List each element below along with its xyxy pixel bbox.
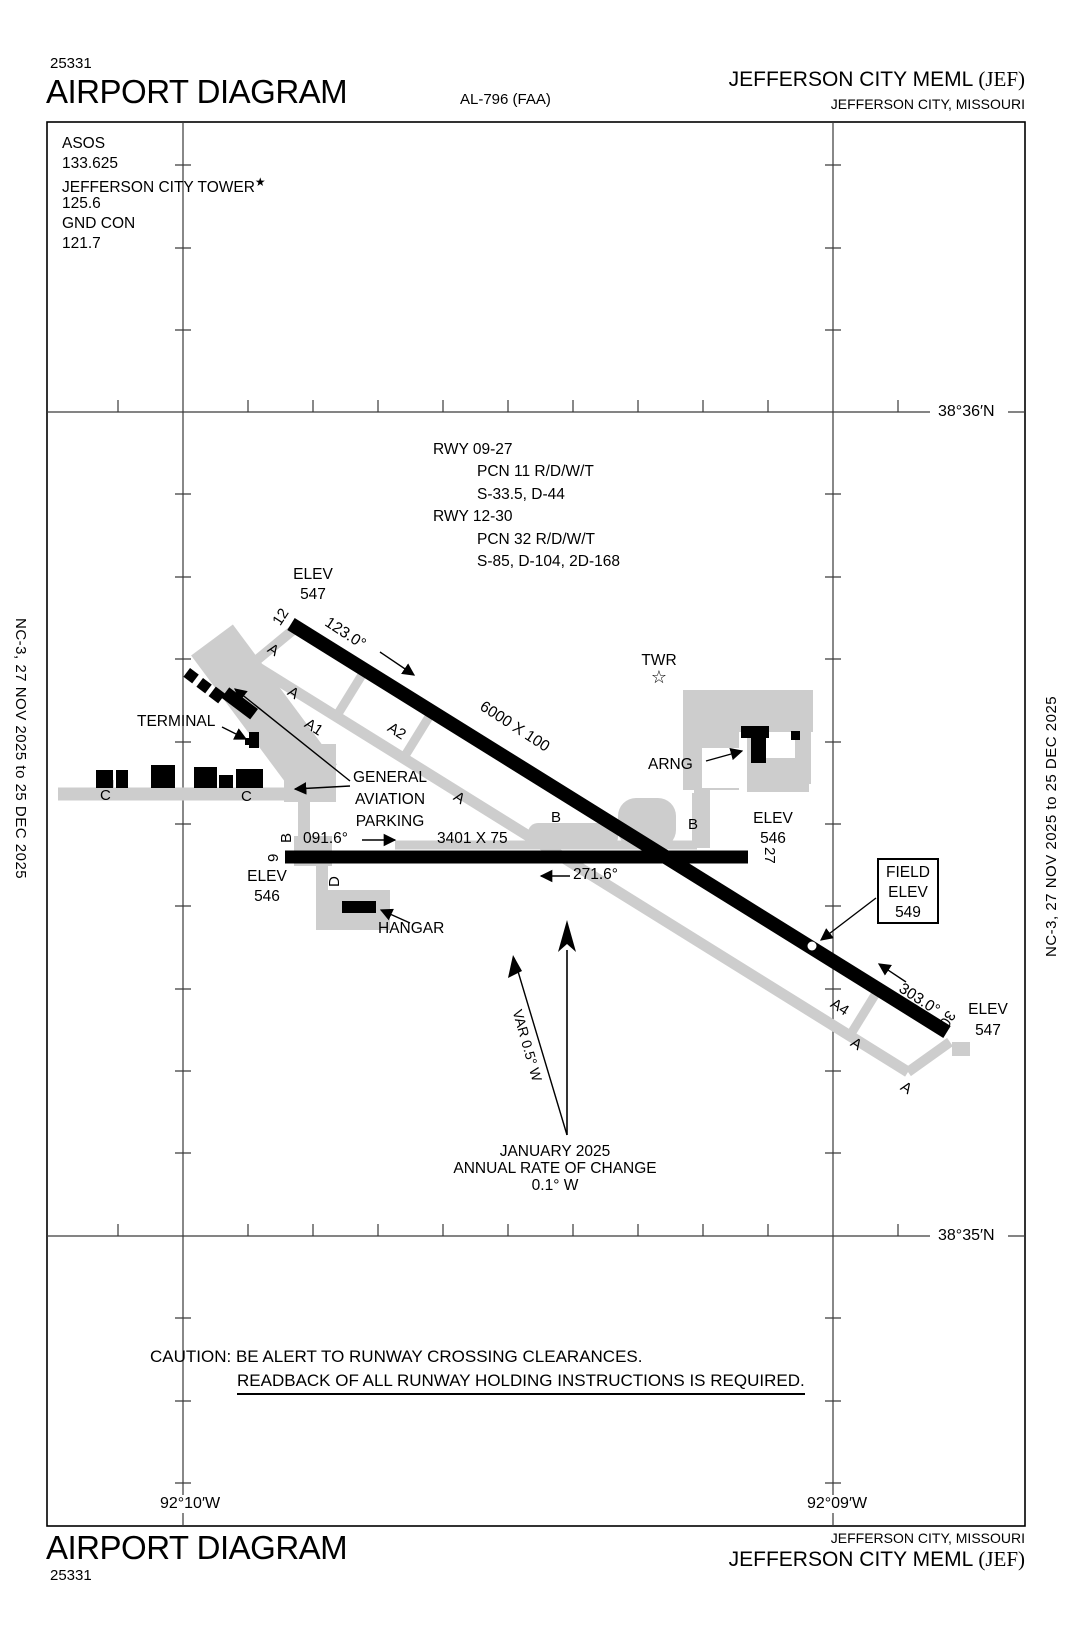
rwy30-end-stub <box>952 1042 970 1056</box>
rwy12-elev-label: ELEV <box>288 566 338 583</box>
latitude-label-bottom: 38°35′N <box>934 1227 999 1245</box>
caution-line2: READBACK OF ALL RUNWAY HOLDING INSTRUCTI… <box>237 1372 805 1395</box>
rwy12-elev-value: 547 <box>288 586 338 603</box>
footer-title: AIRPORT DIAGRAM <box>46 1530 347 1566</box>
east-small-building <box>791 731 800 740</box>
edition-date-left: NC-3, 27 NOV 2025 to 25 DEC 2025 <box>12 618 29 879</box>
east-apron-courtyard <box>702 748 745 788</box>
taxiway-c-label-1: C <box>100 788 111 805</box>
rwy-data-line6: S-85, D-104, 2D-168 <box>477 553 620 570</box>
hangar-label: HANGAR <box>378 920 444 937</box>
page-title: AIRPORT DIAGRAM <box>46 74 347 110</box>
field-elevation-box: FIELD ELEV 549 <box>877 858 939 924</box>
footer-chart-number: 25331 <box>50 1568 92 1585</box>
terminal-complex-seg2 <box>196 678 211 693</box>
tower-star-symbol: ☆ <box>637 668 681 688</box>
rwy9-elev-label: ELEV <box>244 868 290 885</box>
terminal-building <box>249 732 259 748</box>
field-elev-leader-arrow <box>821 898 876 940</box>
taxiway-b-label-mid1: B <box>551 810 561 827</box>
ga-parking-label-1: GENERAL <box>345 769 435 786</box>
asos-frequency: 133.625 <box>62 155 118 173</box>
tower-label: JEFFERSON CITY TOWER★ <box>62 175 266 197</box>
ga-parking-label-3: PARKING <box>345 813 435 830</box>
tower-star-icon: ★ <box>255 175 266 189</box>
airport-city-header: JEFFERSON CITY, MISSOURI <box>831 97 1025 112</box>
airport-code-text: (JEF) <box>978 67 1025 91</box>
taxiway-d-label: D <box>327 876 344 887</box>
field-elev-line2: ELEV <box>879 883 937 903</box>
hangar-building <box>342 901 376 913</box>
taxiway-c-label-2: C <box>241 789 252 806</box>
variation-rate-value: 0.1° W <box>430 1177 680 1194</box>
field-elev-line3: 549 <box>879 903 937 923</box>
ga-building-5 <box>219 775 233 788</box>
arng-building-stem <box>751 737 766 763</box>
apron-center <box>284 744 336 802</box>
magnetic-north-arrow-head <box>508 955 522 978</box>
latitude-label-top: 38°36′N <box>934 403 999 421</box>
footer-city: JEFFERSON CITY, MISSOURI <box>831 1531 1025 1546</box>
longitude-label-left: 92°10′W <box>151 1495 229 1513</box>
taxiway-a-rwy30-connector <box>908 1042 950 1072</box>
rwy-data-line2: PCN 11 R/D/W/T <box>477 463 594 480</box>
rwy-data-line3: S-33.5, D-44 <box>477 486 565 503</box>
variation-date: JANUARY 2025 <box>430 1143 680 1160</box>
edition-date-right: NC-3, 27 NOV 2025 to 25 DEC 2025 <box>1044 696 1061 957</box>
ga-building-6 <box>236 769 263 788</box>
heading-123-arrow <box>380 652 414 675</box>
caution-line1: CAUTION: BE ALERT TO RUNWAY CROSSING CLE… <box>150 1348 643 1367</box>
graticule-ticks-top <box>118 400 898 412</box>
rwy9-elev-value: 546 <box>244 888 290 905</box>
taxiway-b-label-mid2: B <box>688 817 698 834</box>
footer-airport-name-text: JEFFERSON CITY MEML <box>729 1548 973 1571</box>
rwy0927-dimensions: 3401 X 75 <box>437 830 508 847</box>
true-north-arrow-head <box>558 920 576 952</box>
airport-name-text: JEFFERSON CITY MEML <box>729 68 973 91</box>
rwy0927-heading1: 091.6° <box>303 830 348 847</box>
taxiway-a2 <box>403 712 432 759</box>
rwy-data-line4: RWY 12-30 <box>433 508 513 525</box>
terminal-leader-arrow <box>222 727 246 739</box>
tower-label-text: JEFFERSON CITY TOWER <box>62 179 255 196</box>
gnd-con-label: GND CON <box>62 215 135 233</box>
field-elev-reference-dot <box>808 942 817 951</box>
airport-name-header: JEFFERSON CITY MEML (JEF) <box>729 68 1025 91</box>
field-elev-line1: FIELD <box>879 863 937 883</box>
chart-number-top: 25331 <box>50 56 92 73</box>
heading-303-arrow <box>879 964 906 982</box>
rwy27-elev-value: 546 <box>750 830 796 847</box>
graticule-ticks-bottom <box>118 1224 898 1236</box>
arng-building-top <box>741 726 769 738</box>
rwy9-number: 9 <box>266 854 283 862</box>
rwy30-elev-value: 547 <box>964 1022 1012 1039</box>
footer-airport-code-text: (JEF) <box>978 1547 1025 1571</box>
tower-frequency: 125.6 <box>62 195 101 213</box>
taxiway-a1 <box>336 670 365 717</box>
footer-airport-name: JEFFERSON CITY MEML (JEF) <box>729 1548 1025 1571</box>
asos-label: ASOS <box>62 135 105 153</box>
ga-parking-label-2: AVIATION <box>345 791 435 808</box>
rwy0927-heading2: 271.6° <box>573 866 618 883</box>
taxiway-b-label-west: B <box>279 833 296 843</box>
ga-building-4 <box>194 767 217 788</box>
terminal-complex-seg1 <box>183 668 198 683</box>
airport-map-canvas <box>0 0 1076 1650</box>
al-reference: AL-796 (FAA) <box>460 92 551 109</box>
rwy27-number: 27 <box>761 847 778 864</box>
terminal-label: TERMINAL <box>137 713 215 730</box>
longitude-label-right: 92°09′W <box>798 1495 876 1513</box>
ga-building-2 <box>116 770 128 788</box>
rwy-data-line1: RWY 09-27 <box>433 441 513 458</box>
ga-building-1 <box>96 770 113 788</box>
variation-rate-label: ANNUAL RATE OF CHANGE <box>430 1160 680 1177</box>
rwy30-elev-label: ELEV <box>964 1001 1012 1018</box>
taxiway-a4 <box>849 990 878 1037</box>
gnd-con-frequency: 121.7 <box>62 235 101 253</box>
rwy-data-line5: PCN 32 R/D/W/T <box>477 531 595 548</box>
ga-building-3 <box>151 765 175 788</box>
airport-diagram-page: 25331 AIRPORT DIAGRAM AL-796 (FAA) JEFFE… <box>0 0 1076 1650</box>
arng-label: ARNG <box>648 756 693 773</box>
rwy27-elev-label: ELEV <box>750 810 796 827</box>
